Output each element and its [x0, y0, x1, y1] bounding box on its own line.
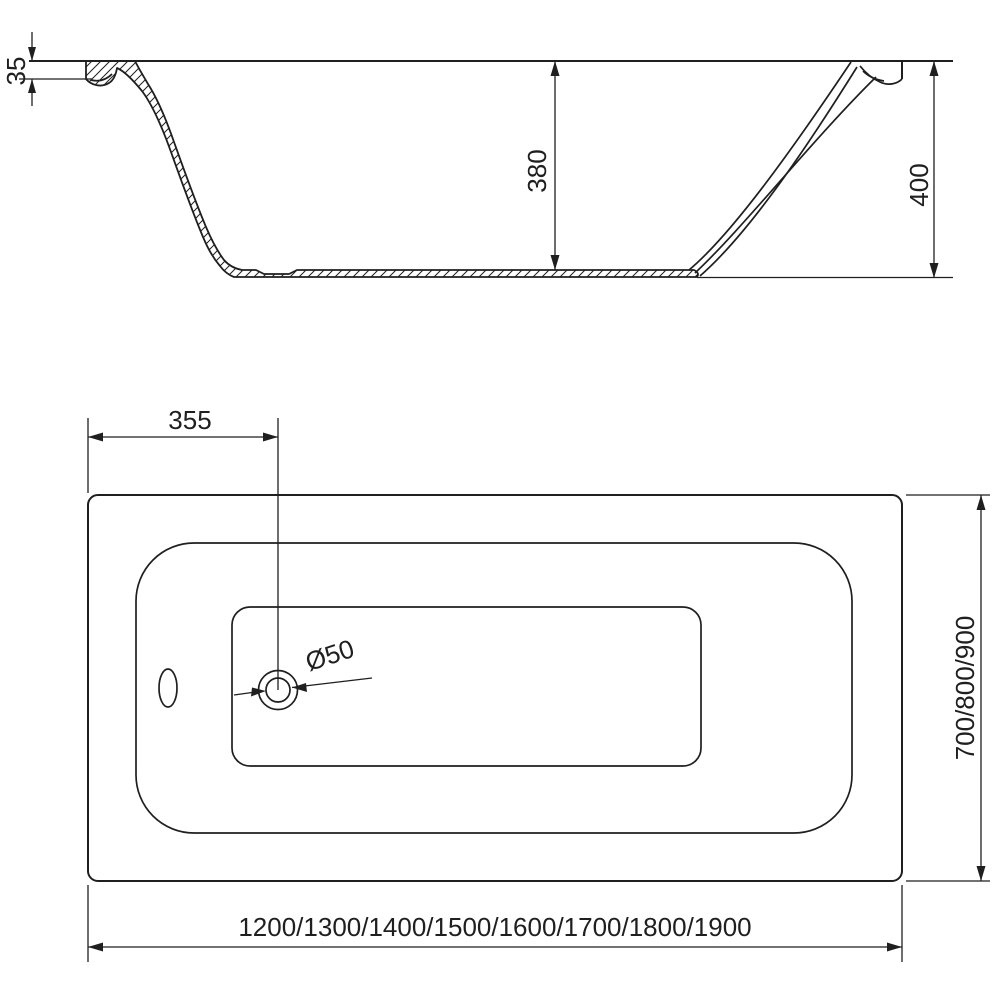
drain-offset-label: 355 — [168, 405, 211, 435]
bathtub-technical-drawing: 35 380 400 — [0, 0, 1000, 1000]
dimension-inner-depth: 380 — [522, 61, 560, 270]
tub-outer-outline — [88, 495, 902, 881]
drawing-canvas: 35 380 400 — [0, 0, 1000, 1000]
length-options-label: 1200/1300/1400/1500/1600/1700/1800/1900 — [238, 912, 751, 942]
rim-height-label: 35 — [1, 57, 31, 86]
right-rim-section — [860, 61, 902, 84]
dimension-drain-diameter: Ø50 — [234, 633, 372, 696]
overall-height-label: 400 — [904, 163, 934, 206]
dimension-overall-height: 400 — [904, 61, 939, 278]
tub-shell-section — [86, 61, 698, 277]
dimension-length-options: 1200/1300/1400/1500/1600/1700/1800/1900 — [88, 885, 902, 962]
dimension-width-options: 700/800/900 — [906, 495, 990, 881]
right-wall-projection — [689, 62, 876, 276]
dimension-rim-height: 35 — [1, 32, 36, 106]
bathtub-plan-view: 355 Ø50 700/800/900 1200/1300/1400/1 — [88, 405, 990, 962]
drain-diameter-label: Ø50 — [302, 633, 358, 677]
inner-depth-label: 380 — [522, 149, 552, 192]
width-options-label: 700/800/900 — [950, 616, 980, 761]
overflow-hole — [159, 669, 177, 707]
dimension-drain-offset: 355 — [88, 405, 278, 493]
bathtub-side-section-view: 35 380 400 — [1, 32, 953, 278]
tub-inner-rim-outline — [136, 543, 852, 833]
